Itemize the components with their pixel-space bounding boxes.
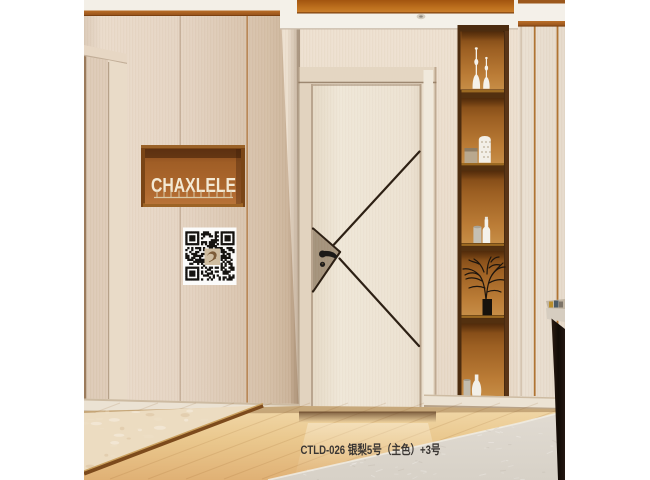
svg-text:CTLD-026 银梨5号（主色）+3号: CTLD-026 银梨5号（主色）+3号: [301, 442, 441, 457]
